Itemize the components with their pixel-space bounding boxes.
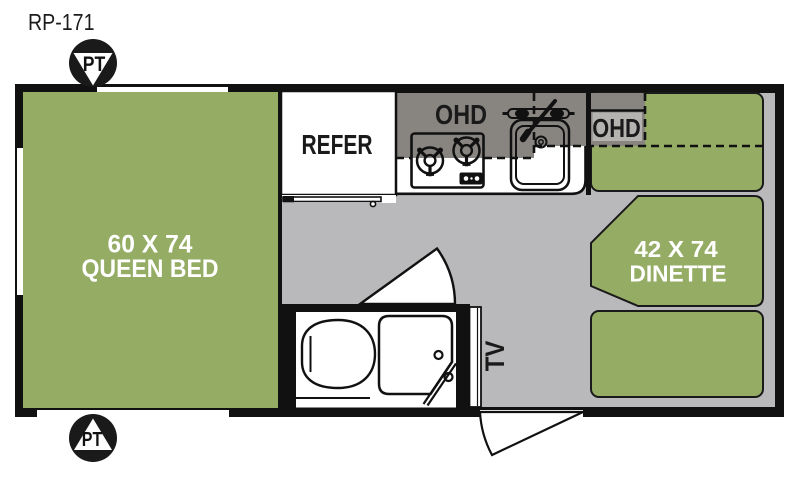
svg-text:RP-171: RP-171: [28, 9, 95, 35]
svg-text:OHD: OHD: [435, 99, 487, 130]
svg-text:PT: PT: [83, 52, 106, 76]
svg-text:42 X 74: 42 X 74: [634, 236, 718, 262]
svg-text:DINETTE: DINETTE: [630, 261, 727, 287]
svg-text:REFER: REFER: [302, 129, 373, 160]
svg-text:PT: PT: [82, 429, 103, 451]
svg-text:60 X 74: 60 X 74: [108, 232, 193, 259]
svg-text:TV: TV: [480, 341, 510, 372]
svg-text:QUEEN BED: QUEEN BED: [82, 256, 219, 283]
svg-text:OHD: OHD: [592, 115, 641, 143]
